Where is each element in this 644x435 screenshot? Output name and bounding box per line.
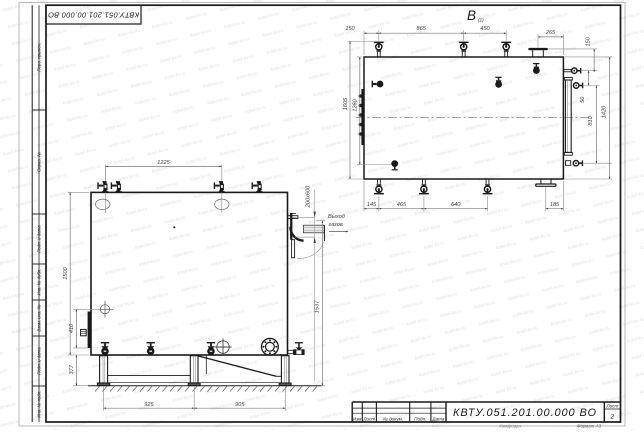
svg-text:150: 150: [586, 36, 592, 46]
svg-text:265: 265: [545, 30, 556, 36]
svg-text:1605: 1605: [343, 97, 349, 110]
svg-text:(1): (1): [478, 18, 484, 23]
svg-text:КВТУ.051.201.00.000 ВО: КВТУ.051.201.00.000 ВО: [48, 11, 139, 20]
svg-text:Изм: Изм: [353, 417, 362, 422]
svg-text:Перв. примен.: Перв. примен.: [37, 42, 42, 71]
svg-text:410: 410: [69, 323, 75, 333]
svg-text:200х600: 200х600: [305, 185, 311, 208]
svg-text:КВТУ.051.201.00.000 ВО: КВТУ.051.201.00.000 ВО: [453, 407, 597, 419]
svg-text:1420: 1420: [601, 105, 607, 118]
svg-text:185: 185: [550, 202, 560, 208]
svg-text:Копировал: Копировал: [499, 423, 521, 428]
svg-text:В: В: [467, 8, 476, 23]
svg-text:925: 925: [144, 402, 154, 408]
svg-text:145: 145: [367, 202, 377, 208]
svg-text:450: 450: [480, 26, 490, 32]
svg-text:2: 2: [610, 414, 615, 421]
svg-text:465: 465: [397, 202, 407, 208]
svg-text:905: 905: [235, 402, 245, 408]
svg-text:Взам. инв. №: Взам. инв. №: [37, 304, 42, 331]
svg-text:Дата: Дата: [431, 417, 445, 422]
svg-text:865: 865: [417, 26, 427, 32]
svg-text:1500: 1500: [63, 266, 69, 279]
svg-text:Инв. № дубл.: Инв. № дубл.: [37, 268, 42, 295]
svg-text:377: 377: [69, 364, 75, 374]
svg-text:газов: газов: [329, 222, 343, 228]
svg-text:Справ. №: Справ. №: [37, 152, 42, 172]
svg-text:1260: 1260: [353, 98, 359, 111]
svg-text:150: 150: [345, 26, 355, 32]
svg-text:Подп. и дата: Подп. и дата: [37, 347, 42, 375]
svg-text:Подп.: Подп.: [414, 417, 426, 422]
svg-text:Инв. № подл.: Инв. № подл.: [37, 390, 42, 417]
svg-text:1537: 1537: [315, 300, 321, 313]
svg-text:Выход: Выход: [328, 214, 345, 220]
svg-text:№ докум.: № докум.: [383, 417, 403, 422]
svg-text:640: 640: [451, 202, 461, 208]
svg-text:Формат А3: Формат А3: [577, 423, 602, 428]
svg-text:Лист: Лист: [362, 417, 375, 422]
svg-text:Подп. и дата: Подп. и дата: [37, 225, 42, 253]
svg-text:50: 50: [580, 96, 586, 103]
svg-text:810: 810: [588, 115, 594, 125]
svg-text:Лист: Лист: [605, 404, 618, 409]
svg-text:1225: 1225: [157, 160, 170, 166]
